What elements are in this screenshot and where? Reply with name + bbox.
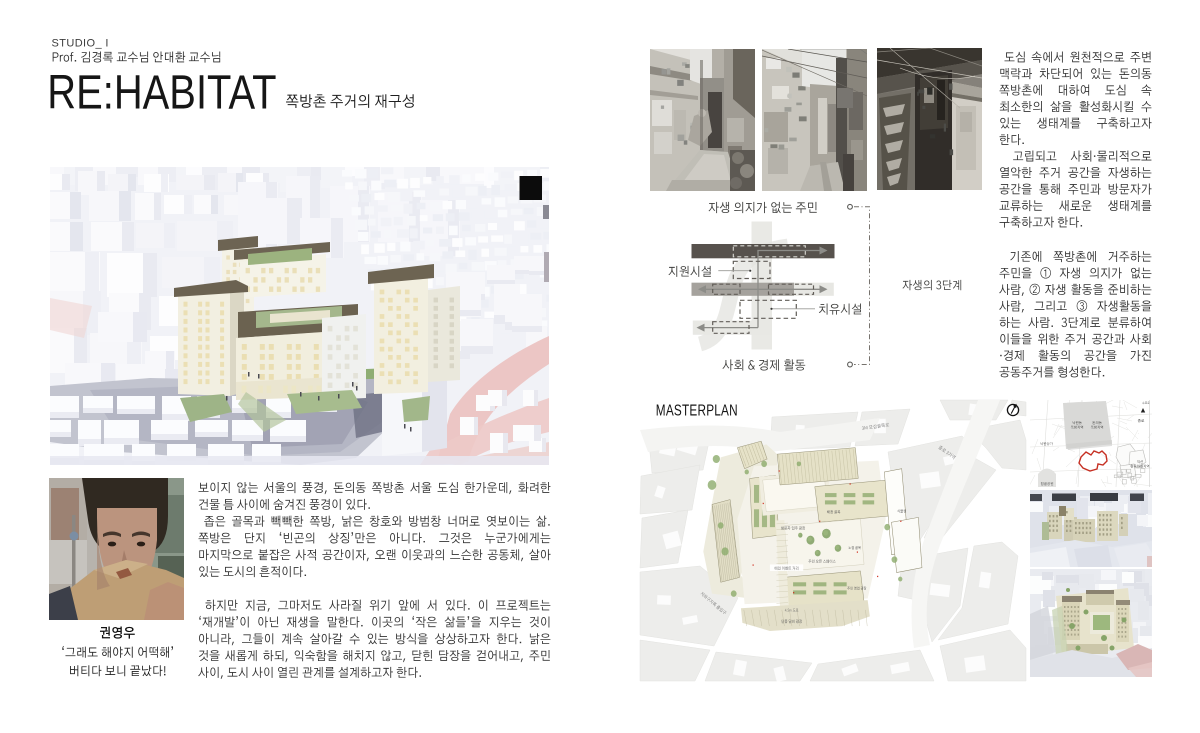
svg-text:MASTERPLAN: MASTERPLAN [656,402,738,419]
svg-text:STUDIO_ I: STUDIO_ I [52,38,109,50]
svg-text:RE:HABITAT: RE:HABITAT [47,66,276,119]
